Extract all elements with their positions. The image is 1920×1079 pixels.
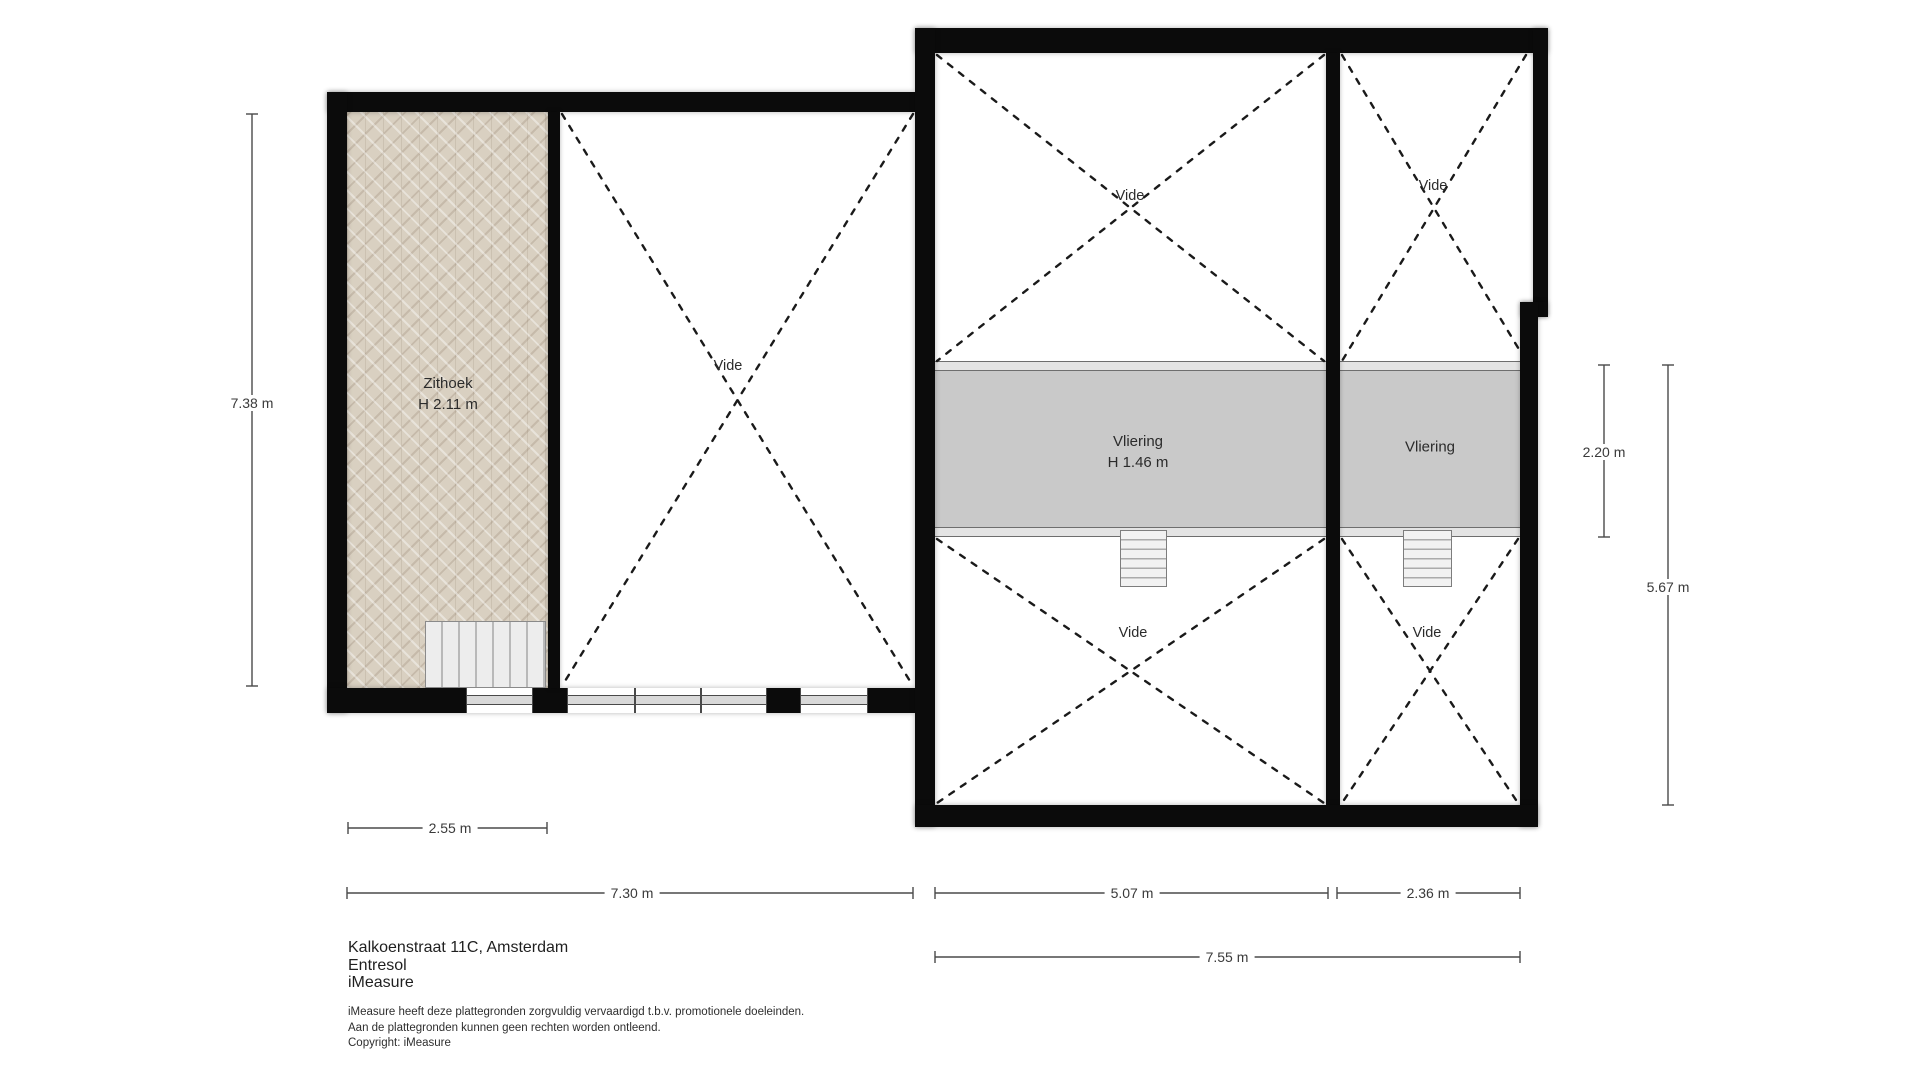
window-1-glass [467,695,532,705]
right-building-wall-middle [1326,53,1340,805]
disclaimer-line-3: Copyright: iMeasure [348,1036,804,1052]
right-building-wall-bottom [915,805,1538,827]
vliering-left-label: Vliering H 1.46 m [1108,431,1169,473]
right-building-wall-left [915,28,935,827]
dim-right-building-width: 7.55 m [1200,949,1255,965]
dim-right-section-a-width: 5.07 m [1105,885,1160,901]
vliering-right-stairs [1403,530,1452,587]
vliering-right-name: Vliering [1405,437,1455,458]
window-1 [466,688,533,713]
dim-right-building-height: 5.67 m [1641,579,1696,595]
vliering-right-label: Vliering [1405,437,1455,458]
vide-label-top-left: Vide [1116,188,1145,204]
dim-left-building-width: 7.30 m [605,885,660,901]
window-2-mullion-1 [634,688,636,713]
right-building-wall-right-lower [1520,302,1538,827]
right-building-wall-right-upper [1533,28,1548,317]
plan-linework [0,0,1920,1079]
zithoek-divider-wall [548,112,560,688]
disclaimer-block: iMeasure heeft deze plattegronden zorgvu… [348,1005,804,1052]
dim-right-section-b-width: 2.36 m [1401,885,1456,901]
left-building-wall-top [327,92,915,112]
address-line: Kalkoenstraat 11C, Amsterdam [348,939,568,957]
window-3 [800,688,868,713]
vide-label-top-right: Vide [1419,178,1448,194]
vide-label-left-building: Vide [714,358,743,374]
right-building-wall-top [915,28,1548,53]
vliering-left-name: Vliering [1108,431,1169,452]
vide-label-bottom-right: Vide [1413,625,1442,641]
vliering-left-stairs [1120,530,1167,587]
window-2 [567,688,767,713]
zithoek-name: Zithoek [418,373,478,394]
zithoek-label: Zithoek H 2.11 m [418,373,478,415]
window-3-glass [801,695,867,705]
dim-left-building-height: 7.38 m [225,395,280,411]
vide-label-bottom-left: Vide [1119,625,1148,641]
floor-name: Entresol [348,957,568,975]
window-2-mullion-2 [700,688,702,713]
dim-zithoek-width: 2.55 m [423,820,478,836]
disclaimer-line-2: Aan de plattegronden kunnen geen rechten… [348,1021,804,1037]
title-block: Kalkoenstraat 11C, Amsterdam Entresol iM… [348,939,568,992]
window-2-glass [568,695,766,705]
zithoek-stairs [425,621,546,688]
zithoek-height: H 2.11 m [418,394,478,415]
left-building-wall-left [327,92,347,713]
floorplan-canvas: Zithoek H 2.11 m Vide Vide Vide Vide Vid… [0,0,1920,1079]
dim-vliering-depth: 2.20 m [1577,444,1632,460]
disclaimer-line-1: iMeasure heeft deze plattegronden zorgvu… [348,1005,804,1021]
vliering-left-height: H 1.46 m [1108,452,1169,473]
company-name: iMeasure [348,974,568,992]
